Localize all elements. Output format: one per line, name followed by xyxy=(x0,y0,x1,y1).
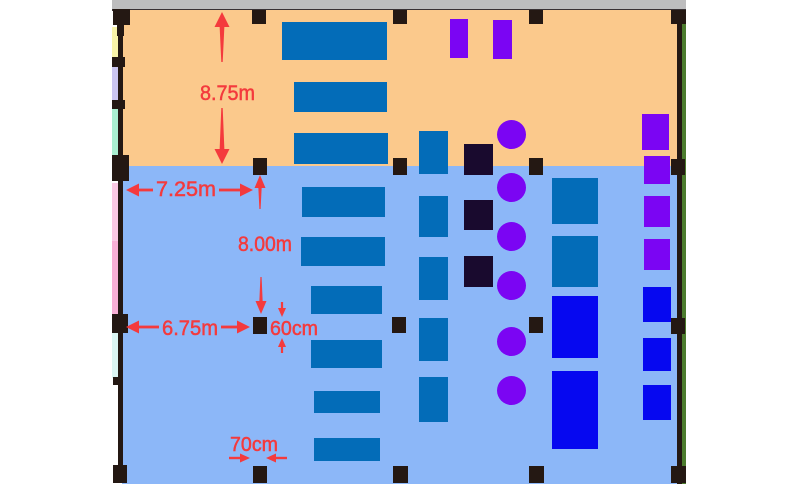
svg-text:7.25m: 7.25m xyxy=(156,177,216,201)
svg-text:70cm: 70cm xyxy=(230,433,278,456)
svg-text:8.00m: 8.00m xyxy=(238,232,292,256)
svg-text:6.75m: 6.75m xyxy=(162,316,218,340)
svg-text:8.75m: 8.75m xyxy=(200,81,255,105)
svg-text:60cm: 60cm xyxy=(270,317,318,340)
